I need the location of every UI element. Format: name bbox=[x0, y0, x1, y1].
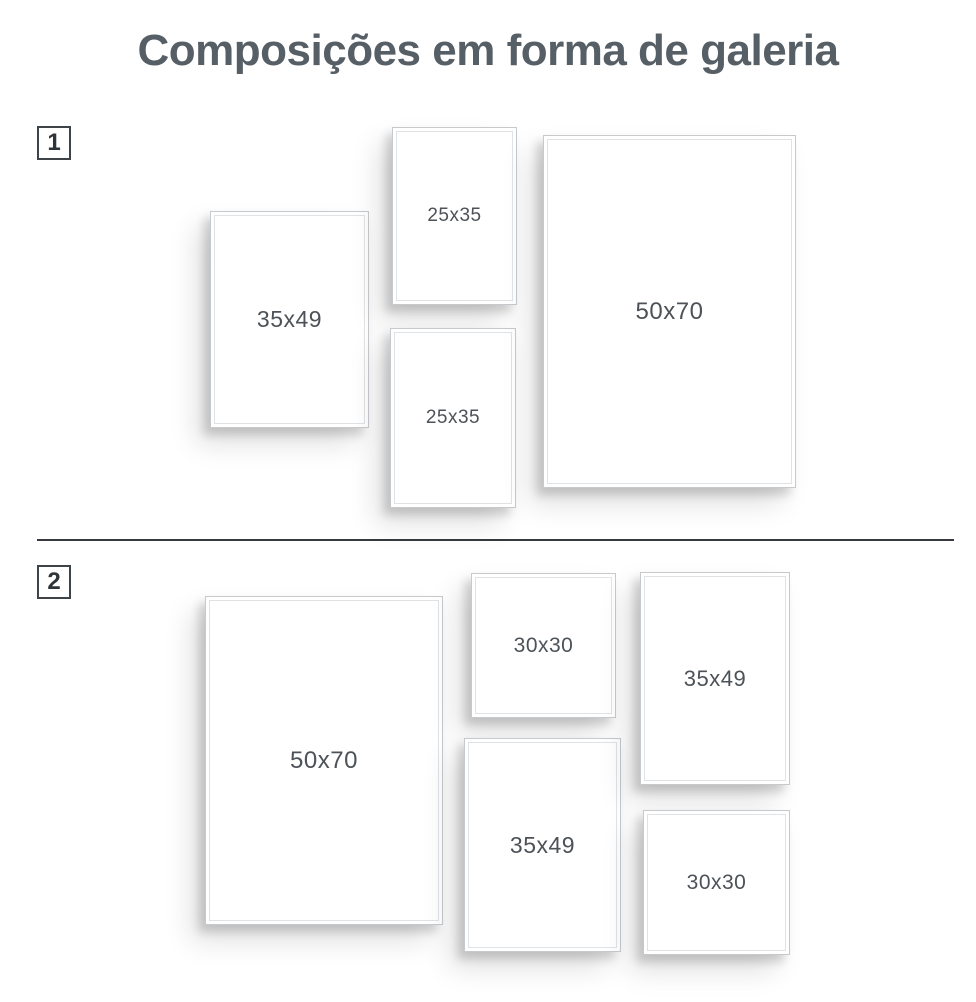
picture-frame: 25x35 bbox=[390, 328, 516, 508]
section-1-number-badge: 1 bbox=[37, 126, 71, 160]
picture-frame: 35x49 bbox=[640, 572, 790, 785]
frame-size-label: 35x49 bbox=[510, 832, 575, 859]
page-title: Composições em forma de galeria bbox=[0, 26, 976, 76]
gallery-compositions-diagram: Composições em forma de galeria 1 2 35x4… bbox=[0, 0, 976, 1002]
picture-frame: 25x35 bbox=[392, 127, 517, 305]
frame-size-label: 25x35 bbox=[426, 407, 480, 429]
frame-size-label: 50x70 bbox=[636, 298, 704, 326]
frame-size-label: 30x30 bbox=[687, 871, 747, 895]
frame-size-label: 50x70 bbox=[290, 747, 358, 775]
picture-frame: 35x49 bbox=[210, 211, 369, 428]
frame-size-label: 30x30 bbox=[514, 634, 574, 658]
section-2-number-badge: 2 bbox=[37, 565, 71, 599]
frame-size-label: 35x49 bbox=[684, 666, 746, 692]
picture-frame: 30x30 bbox=[643, 810, 790, 955]
picture-frame: 50x70 bbox=[543, 135, 796, 488]
frame-size-label: 25x35 bbox=[427, 205, 481, 227]
frame-size-label: 35x49 bbox=[257, 306, 322, 333]
picture-frame: 50x70 bbox=[205, 596, 443, 925]
picture-frame: 35x49 bbox=[464, 738, 621, 952]
section-divider bbox=[37, 539, 954, 541]
picture-frame: 30x30 bbox=[471, 573, 616, 718]
